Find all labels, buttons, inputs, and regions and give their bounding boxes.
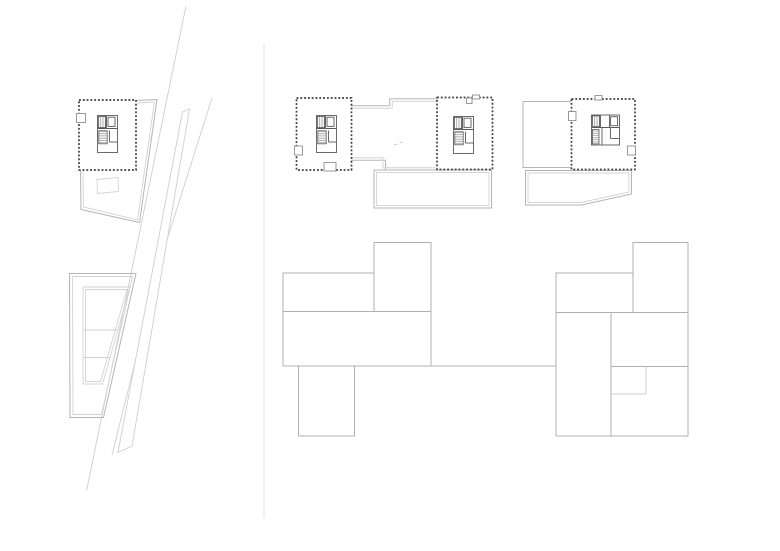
facade-door [467,98,473,104]
floor-plan-c [523,96,636,206]
lower-terrace [374,170,492,208]
site-plan-panel [70,6,213,490]
deck-bottom-inner-line [352,158,438,168]
terrace-inner-line [377,173,490,206]
stair-core [454,117,474,154]
terrace-outer-line [374,170,492,208]
stair-core [317,116,337,153]
deck-detail-marks [394,143,403,145]
block-bottom-wing [299,366,355,436]
wedge-inner-wall [73,277,133,415]
facade-door [295,146,303,155]
roof-vent [595,96,602,101]
road-lines [87,6,212,490]
block-right-lower [611,367,688,437]
deck-bottom-outer-line [352,160,386,170]
connecting-deck [352,99,438,170]
wedge-interior-block [83,287,130,384]
floor-plan-b [295,95,493,208]
deck-top-inner-line [352,101,438,108]
block-top-right [633,243,688,313]
block-right-upper [611,313,688,367]
wedge-building [70,274,137,418]
chamfered-terrace [526,171,632,206]
facade-door [77,114,86,123]
architectural-drawing-sheet [0,0,780,551]
block-plan-right [556,243,688,437]
terrace-outer-line [526,171,632,206]
block-upper-left [556,273,633,313]
roof-vent [473,95,480,99]
wedge-interior-inner-line [86,290,128,382]
stair-core [592,115,620,145]
block-left-column [556,313,611,437]
block-middle-bar [283,312,431,367]
entrance-opening [324,163,336,172]
drawing-svg [0,0,780,551]
block-upper-left [283,273,374,312]
block-top-right [374,243,431,312]
wedge-outer-wall [70,274,137,418]
facade-door [569,112,577,121]
facade-door [628,146,636,155]
deck-top-outer-line [352,99,438,106]
stair-core [98,116,118,153]
skylight-opening [97,178,119,194]
block-plan-left [283,243,556,437]
